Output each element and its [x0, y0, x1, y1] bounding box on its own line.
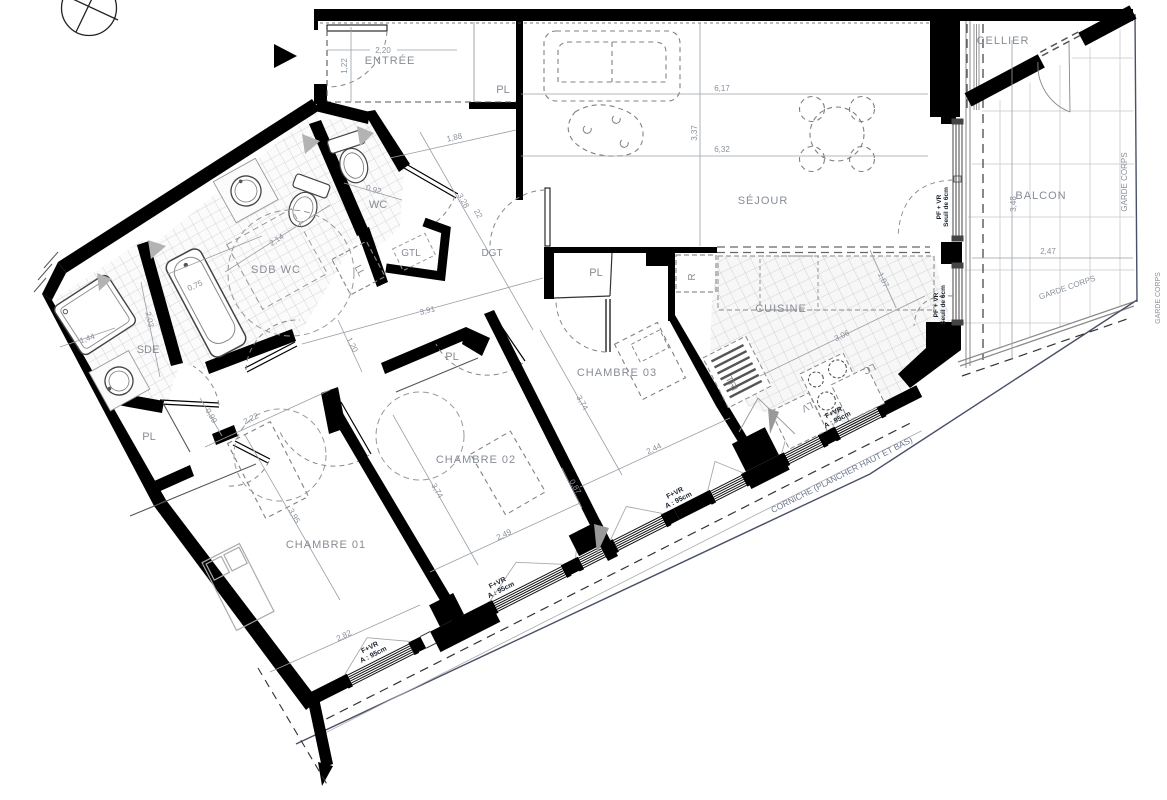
svg-text:CHAMBRE 01: CHAMBRE 01 — [286, 539, 366, 551]
svg-text:PF + VR: PF + VR — [936, 194, 943, 219]
svg-text:CUISINE: CUISINE — [755, 303, 807, 315]
svg-text:2,20: 2,20 — [375, 46, 391, 55]
svg-text:Seuil de 6cm: Seuil de 6cm — [940, 285, 947, 325]
svg-text:GARDE CORPS: GARDE CORPS — [1120, 152, 1129, 211]
svg-text:SÉJOUR: SÉJOUR — [738, 194, 789, 207]
svg-text:1,22: 1,22 — [340, 58, 349, 74]
svg-text:2,47: 2,47 — [1040, 247, 1056, 256]
svg-text:PL: PL — [496, 84, 509, 96]
svg-text:PF + VR: PF + VR — [933, 292, 940, 317]
svg-text:CHAMBRE 03: CHAMBRE 03 — [577, 367, 657, 379]
svg-text:GARDE CORPS: GARDE CORPS — [1155, 272, 1162, 324]
svg-text:PL: PL — [589, 267, 602, 279]
svg-text:CHAMBRE 02: CHAMBRE 02 — [436, 454, 516, 466]
svg-text:PL: PL — [142, 431, 155, 443]
svg-text:6,32: 6,32 — [714, 145, 730, 154]
svg-text:SDB WC: SDB WC — [251, 264, 301, 276]
svg-text:GTL: GTL — [401, 248, 421, 259]
svg-text:ENTRÉE: ENTRÉE — [365, 54, 416, 67]
svg-text:R: R — [687, 273, 698, 280]
svg-text:6,17: 6,17 — [714, 84, 730, 93]
svg-text:BALCON: BALCON — [1015, 190, 1066, 202]
svg-text:SDE: SDE — [137, 344, 160, 356]
svg-text:CELLIER: CELLIER — [977, 35, 1030, 47]
svg-text:PL: PL — [445, 351, 458, 363]
svg-text:3,37: 3,37 — [690, 125, 699, 141]
svg-text:WC: WC — [369, 199, 387, 211]
svg-text:DGT: DGT — [481, 248, 502, 259]
svg-text:Seuil de 6cm: Seuil de 6cm — [943, 187, 950, 227]
